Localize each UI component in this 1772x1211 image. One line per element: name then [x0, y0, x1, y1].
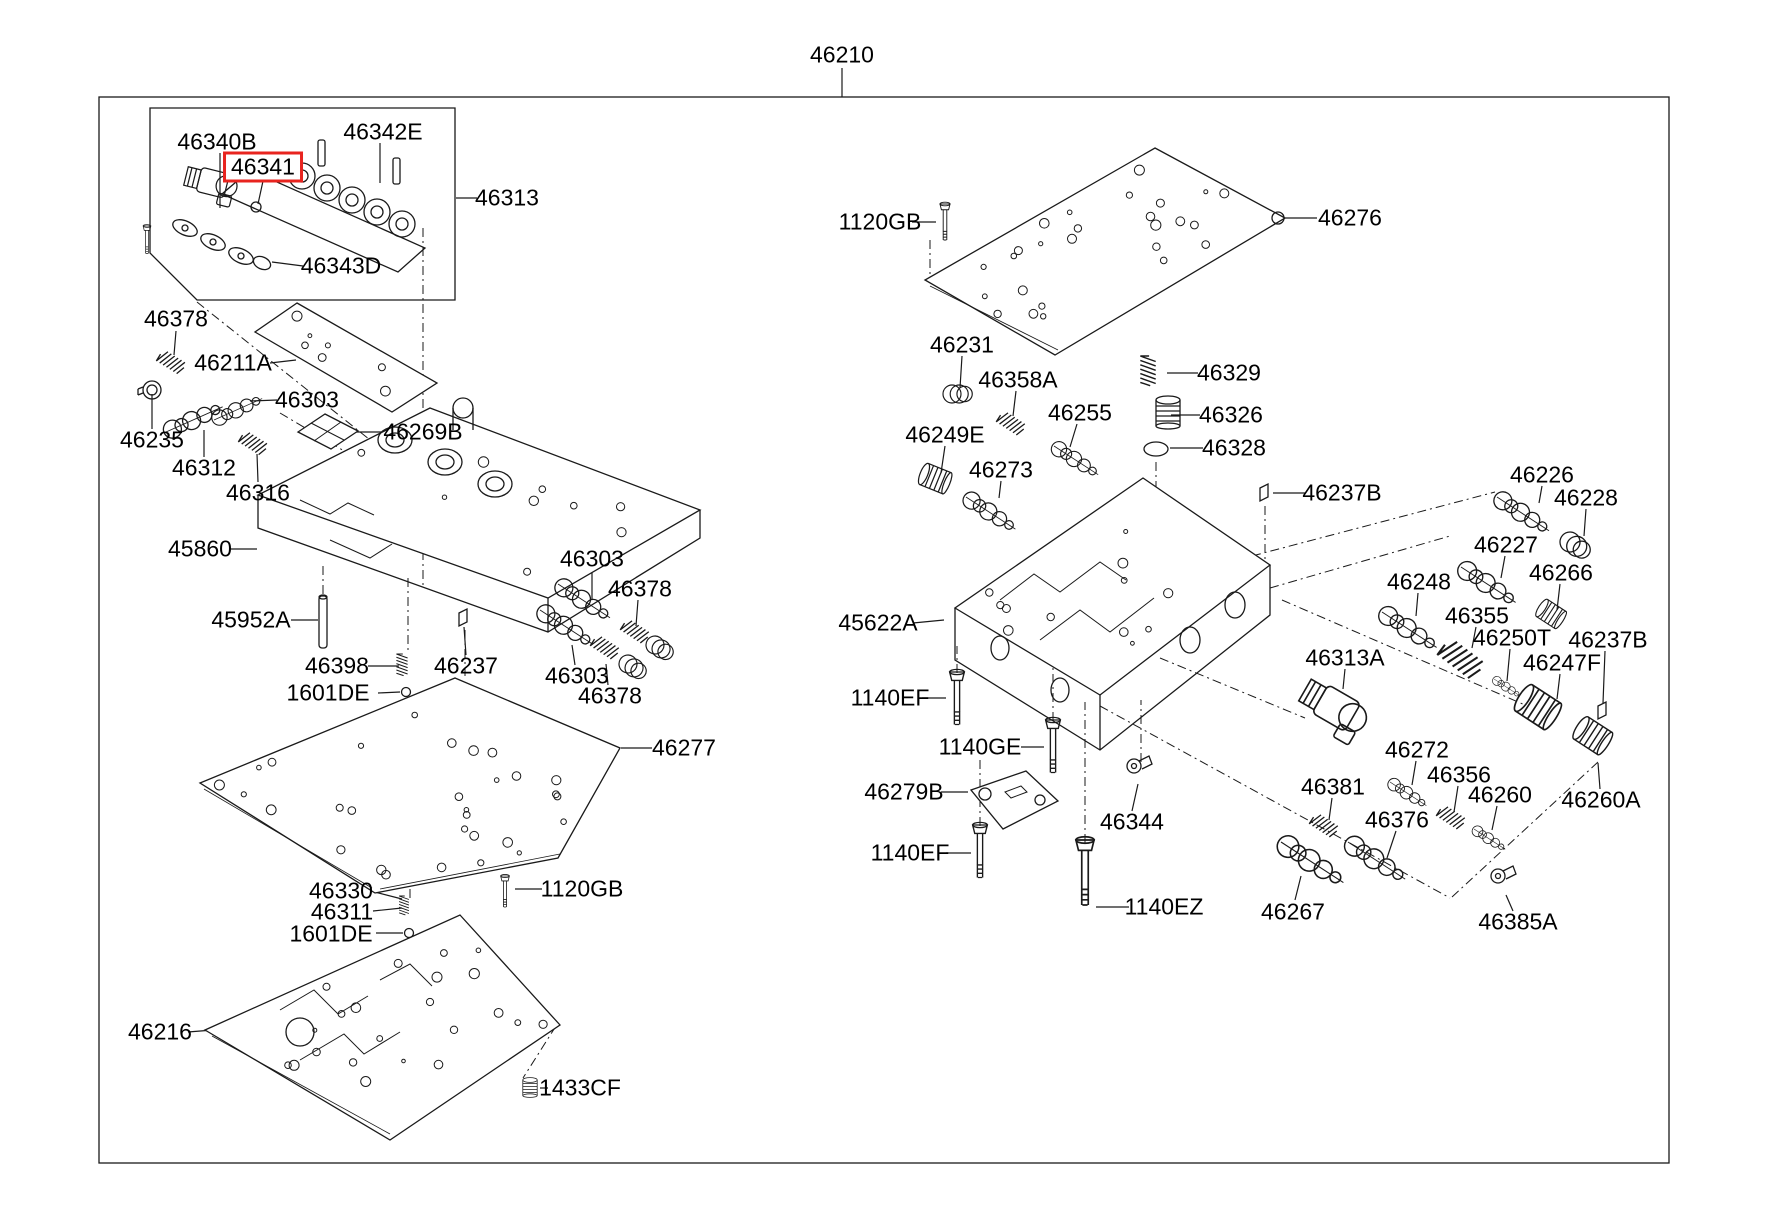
part-label-46272: 46272	[1385, 739, 1449, 762]
part-label-46344: 46344	[1100, 811, 1164, 834]
part-label-1433CF: 1433CF	[539, 1077, 621, 1100]
part-label-46378-3: 46378	[578, 685, 642, 708]
gasket-46277-drawing	[200, 678, 620, 893]
part-label-46277: 46277	[652, 737, 716, 760]
part-label-46255: 46255	[1048, 402, 1112, 425]
spring-46378-2-part	[620, 618, 650, 644]
part-label-45860: 45860	[168, 538, 232, 561]
lower-valve-body-46216-drawing	[205, 915, 560, 1140]
part-label-46326: 46326	[1199, 404, 1263, 427]
part-label-45622A: 45622A	[838, 612, 917, 635]
bolt-1140ge-part	[1046, 717, 1061, 772]
part-label-46266: 46266	[1529, 562, 1593, 585]
nut-46235-part	[138, 381, 161, 399]
part-label-46341-highlighted: 46341	[223, 152, 303, 183]
plug-46228-part	[1556, 528, 1594, 562]
part-label-46260A: 46260A	[1561, 789, 1640, 812]
part-label-46385A: 46385A	[1478, 911, 1557, 934]
bolt-1140ez-part	[1076, 837, 1094, 905]
sleeve-46249e-part	[916, 462, 954, 495]
bolt-1140ef-1-part	[950, 669, 965, 724]
part-label-46226: 46226	[1510, 464, 1574, 487]
part-label-46340B: 46340B	[177, 131, 256, 154]
part-label-46329: 46329	[1197, 362, 1261, 385]
spring-46378-3-part	[590, 634, 620, 660]
part-label-46343D: 46343D	[301, 255, 382, 278]
spring-46358a-part	[996, 410, 1026, 436]
spring-46378-1-part	[156, 349, 186, 375]
part-label-1601DE-1: 1601DE	[286, 682, 369, 705]
clip-46385a-part	[1491, 866, 1516, 883]
part-label-46235: 46235	[120, 429, 184, 452]
cap-46231-part	[943, 385, 972, 403]
part-label-46279B: 46279B	[864, 781, 943, 804]
rod-46267-part	[1273, 832, 1349, 892]
ring-46328-part	[1144, 442, 1168, 456]
valve-46376-part	[1341, 832, 1411, 887]
part-label-46216: 46216	[128, 1021, 192, 1044]
part-label-46328: 46328	[1202, 437, 1266, 460]
plug-part-2	[616, 652, 650, 683]
spring-46398-part	[396, 654, 407, 676]
part-label-46312: 46312	[172, 457, 236, 480]
part-label-1140EF-1: 1140EF	[851, 687, 930, 710]
plug-1433cf-part	[523, 1078, 537, 1098]
part-label-46237B-1: 46237B	[1302, 482, 1381, 505]
accumulator-46326-part	[1156, 396, 1180, 429]
valve-46250t-part	[1491, 675, 1523, 700]
bolt-1140ef-2-part	[973, 822, 988, 877]
bolt-1120gb-1-part	[940, 202, 950, 240]
wedge-46237b-1-part	[1260, 484, 1268, 501]
part-label-46260: 46260	[1468, 784, 1532, 807]
part-label-46250T: 46250T	[1473, 627, 1551, 650]
gasket-46276-drawing	[925, 148, 1285, 355]
spool-46273-part	[960, 489, 1020, 536]
part-label-46269B: 46269B	[383, 421, 462, 444]
clip-46344-part	[1127, 756, 1152, 773]
part-label-46249E: 46249E	[905, 424, 984, 447]
part-label-46267: 46267	[1261, 901, 1325, 924]
wedge-46237b-2-part	[1598, 702, 1606, 719]
part-label-46303-1: 46303	[275, 389, 339, 412]
part-label-46313A: 46313A	[1305, 647, 1384, 670]
part-label-46237: 46237	[434, 655, 498, 678]
part-label-46273: 46273	[969, 459, 1033, 482]
ball-1601de-2-part	[405, 929, 414, 938]
wedge-46237-part	[459, 609, 467, 626]
part-label-45952A: 45952A	[211, 609, 290, 632]
part-label-46231: 46231	[930, 334, 994, 357]
spring-46356-part	[1436, 804, 1466, 830]
part-label-46211A: 46211A	[194, 352, 272, 375]
part-label-46248: 46248	[1387, 571, 1451, 594]
valve-46260-part	[1470, 824, 1508, 854]
part-label-46227: 46227	[1474, 534, 1538, 557]
solenoid-46313a-part	[1292, 676, 1373, 747]
pin-45952a-part	[319, 595, 327, 648]
sleeve-46247f-part	[1511, 682, 1564, 732]
part-label-46276: 46276	[1318, 207, 1382, 230]
part-label-46358A: 46358A	[978, 369, 1057, 392]
part-label-1140EZ: 1140EZ	[1125, 896, 1204, 919]
spool-46248-part	[1375, 603, 1442, 655]
plug-46260a-part	[1570, 715, 1615, 757]
part-label-46381: 46381	[1301, 776, 1365, 799]
part-label-46237B-2: 46237B	[1568, 629, 1647, 652]
part-label-46303-2: 46303	[560, 548, 624, 571]
bracket-46279b-drawing	[971, 771, 1058, 829]
spring-46316-part	[238, 430, 268, 456]
part-label-46398: 46398	[305, 655, 369, 678]
part-label-46342E: 46342E	[343, 121, 422, 144]
part-label-46210: 46210	[810, 44, 874, 67]
part-label-1140EF-2: 1140EF	[871, 842, 950, 865]
part-label-46376: 46376	[1365, 809, 1429, 832]
mini-plate-46269b-drawing	[298, 414, 358, 449]
bracket-46343d-part	[170, 216, 272, 272]
part-label-1140GE: 1140GE	[939, 736, 1022, 759]
bolt-1120gb-2-part	[501, 874, 510, 907]
part-label-46247F: 46247F	[1523, 652, 1601, 675]
spool-46303-3-part	[533, 601, 596, 651]
part-label-46228: 46228	[1554, 487, 1618, 510]
part-label-1120GB-2: 1120GB	[541, 878, 624, 901]
part-label-46316: 46316	[226, 482, 290, 505]
part-label-46378-1: 46378	[144, 308, 208, 331]
spool-46255-part	[1048, 439, 1102, 481]
parts-diagram: 46210 46340B 46341 46342E 46313 46343D 4…	[0, 0, 1772, 1211]
part-label-46313: 46313	[475, 187, 539, 210]
part-label-46378-2: 46378	[608, 578, 672, 601]
ball-1601de-1-part	[402, 688, 411, 697]
part-label-1601DE-2: 1601DE	[289, 923, 372, 946]
spring-46329-part	[1140, 356, 1155, 386]
spool-46303-1-part	[209, 392, 265, 428]
part-label-1120GB-1: 1120GB	[839, 211, 922, 234]
main-valve-body-45622a-drawing	[955, 478, 1270, 750]
